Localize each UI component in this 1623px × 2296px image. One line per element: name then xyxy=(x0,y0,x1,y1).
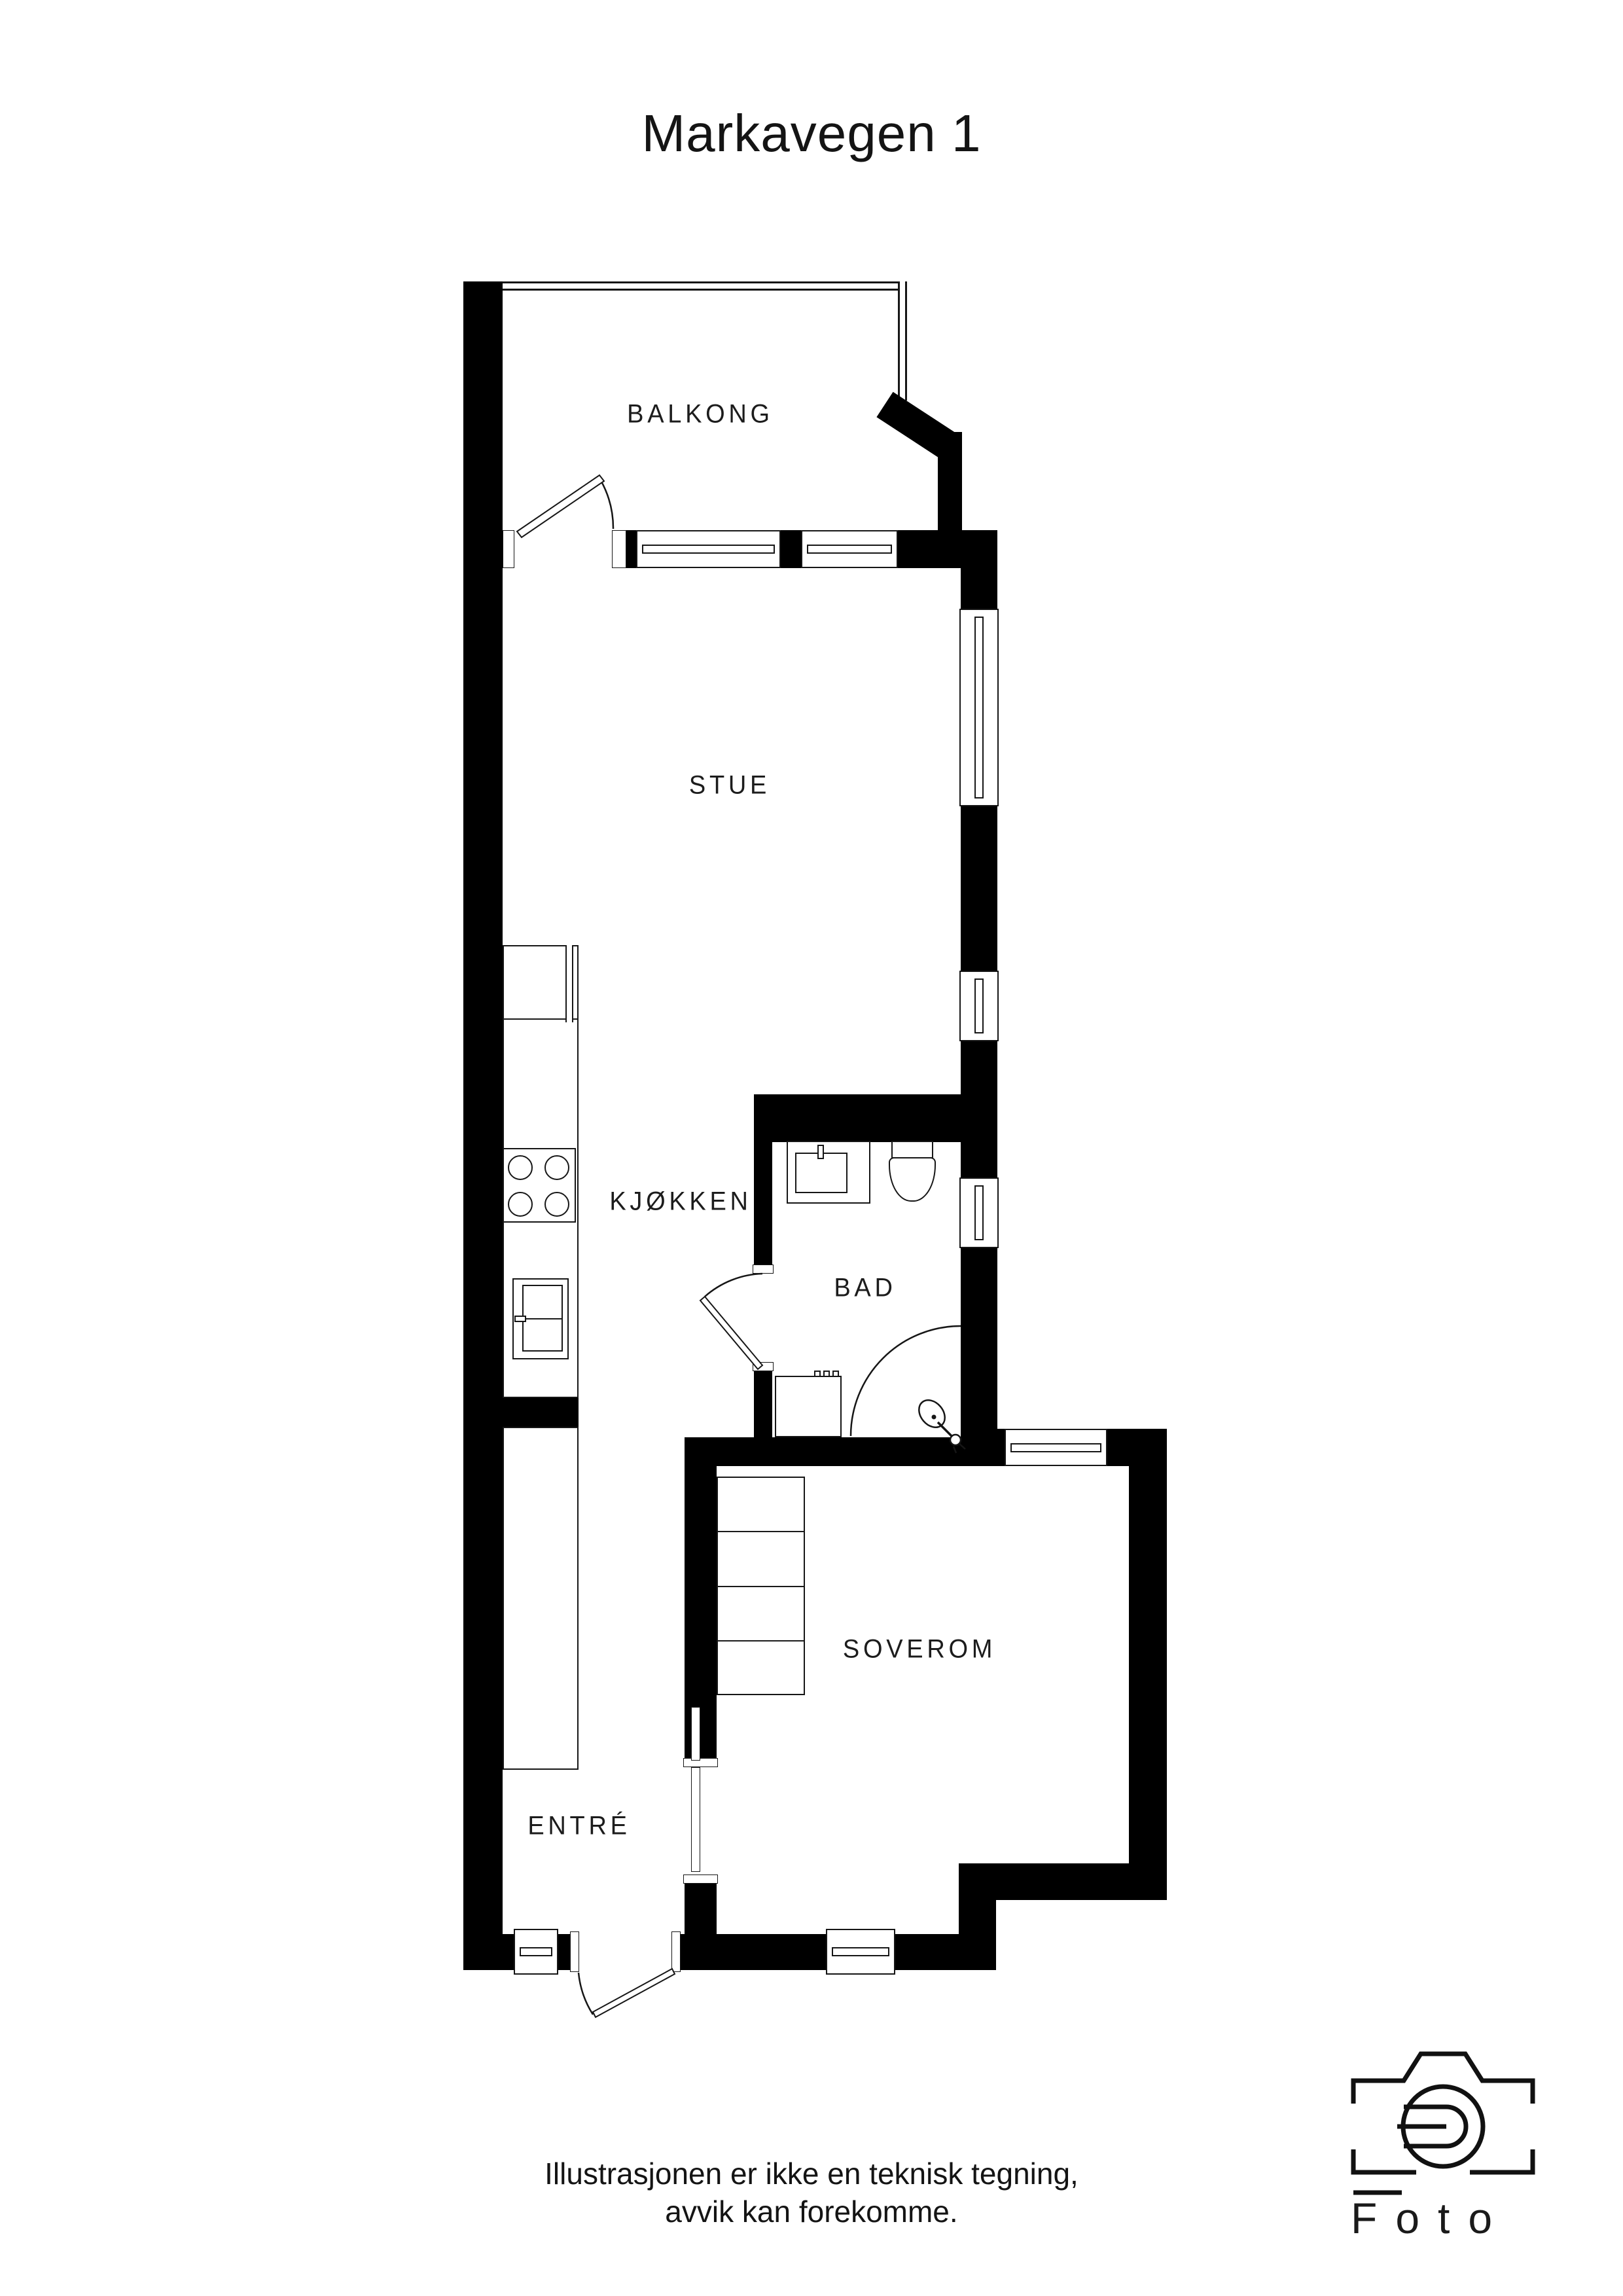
plan-line-overlay xyxy=(0,0,1623,2296)
room-label-bedroom: SOVEROM xyxy=(843,1635,996,1664)
bath-door-arc xyxy=(705,1274,762,1297)
logo-wordmark: Foto xyxy=(1351,2194,1510,2242)
balcony-door-leaf xyxy=(517,475,604,537)
entry-door-arc xyxy=(579,1973,593,2015)
room-label-entry: ENTRÉ xyxy=(527,1812,630,1841)
camera-line-icon xyxy=(1353,2054,1533,2193)
floor-plan: Markavegen 1 xyxy=(0,0,1623,2296)
room-label-living: STUE xyxy=(689,771,770,800)
shower-hose xyxy=(938,1422,954,1438)
logo: Foto xyxy=(1342,2043,1546,2242)
shower-handle-spray xyxy=(954,1446,956,1453)
shower-handle-spray xyxy=(959,1444,965,1449)
room-label-bath: BAD xyxy=(834,1274,896,1303)
wall-balcony-diagonal xyxy=(885,404,953,449)
shower-handle xyxy=(950,1435,961,1445)
balcony-door-arc xyxy=(601,480,613,529)
room-label-kitchen: KJØKKEN xyxy=(609,1187,751,1217)
shower-head-icon xyxy=(914,1395,950,1432)
shower-head-dot xyxy=(932,1415,936,1420)
entry-door-leaf xyxy=(593,1969,675,2017)
room-label-balcony: BALKONG xyxy=(627,400,774,429)
bath-door-leaf xyxy=(700,1297,762,1369)
